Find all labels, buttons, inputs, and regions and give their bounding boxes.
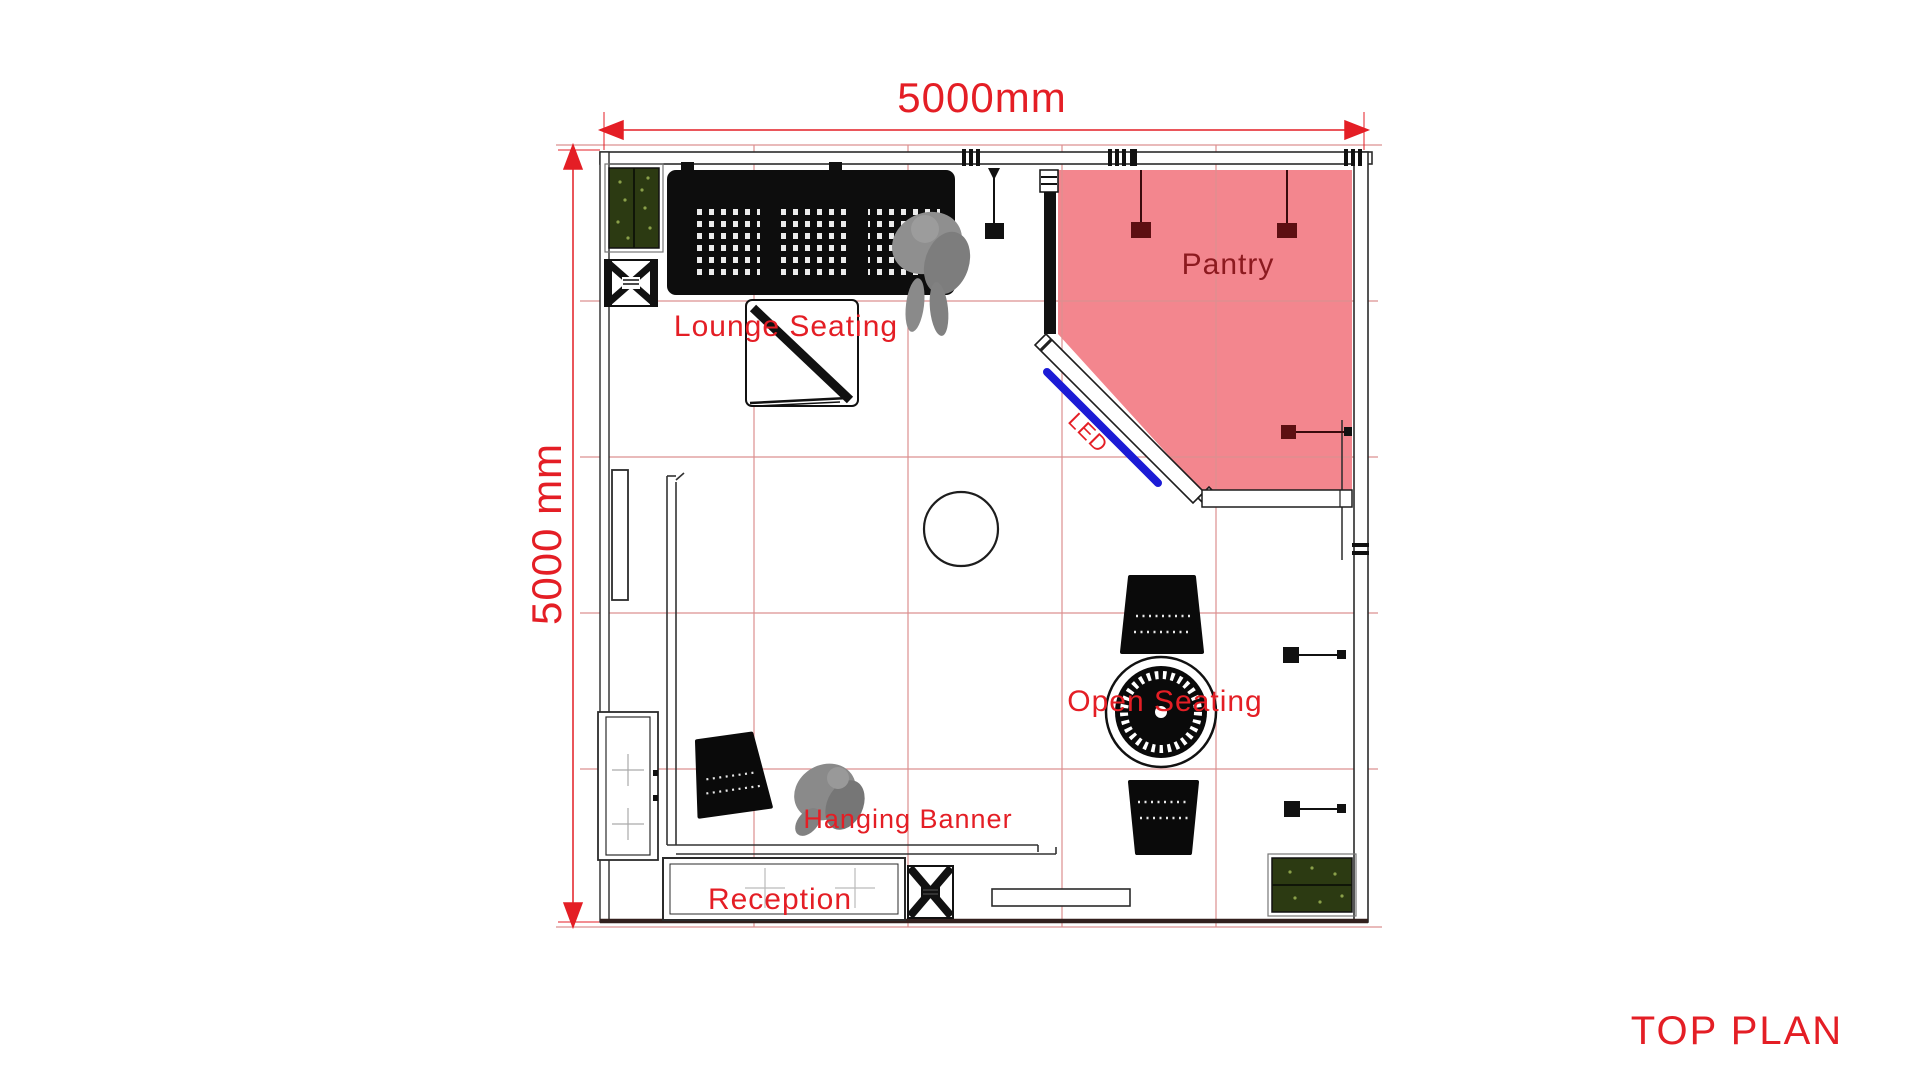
floor-plan-page: 5000mm 5000 mm Pantry Lounge Seating LED… xyxy=(0,0,1920,1080)
left-wall-panel xyxy=(612,470,628,600)
hedge-bottom-right xyxy=(1268,854,1356,916)
reception-chair xyxy=(689,732,771,816)
floor-plan: 5000mm 5000 mm Pantry Lounge Seating LED… xyxy=(0,0,1920,1080)
dim-width-label: 5000mm xyxy=(897,74,1066,121)
dim-height-label: 5000 mm xyxy=(523,443,570,625)
lounge-seating-label: Lounge Seating xyxy=(674,310,898,343)
hedge-top-left xyxy=(605,164,663,252)
page-title: TOP PLAN xyxy=(1631,1009,1843,1053)
round-standing-table xyxy=(924,492,998,566)
pantry-counter-bottom xyxy=(1202,490,1352,507)
open-seating-chair-top xyxy=(1122,577,1202,652)
pantry-label: Pantry xyxy=(1182,248,1275,281)
open-seating-label: Open Seating xyxy=(1067,685,1262,718)
pantry-partition-wall xyxy=(1040,170,1058,334)
left-cabinet xyxy=(598,712,658,860)
hanging-banner-label: Hanging Banner xyxy=(803,804,1012,834)
column-x-top-left xyxy=(605,260,657,306)
bottom-bench xyxy=(992,889,1130,906)
column-x-bottom xyxy=(908,866,953,918)
reception-label: Reception xyxy=(708,883,852,916)
open-seating-chair-bottom xyxy=(1130,782,1197,853)
